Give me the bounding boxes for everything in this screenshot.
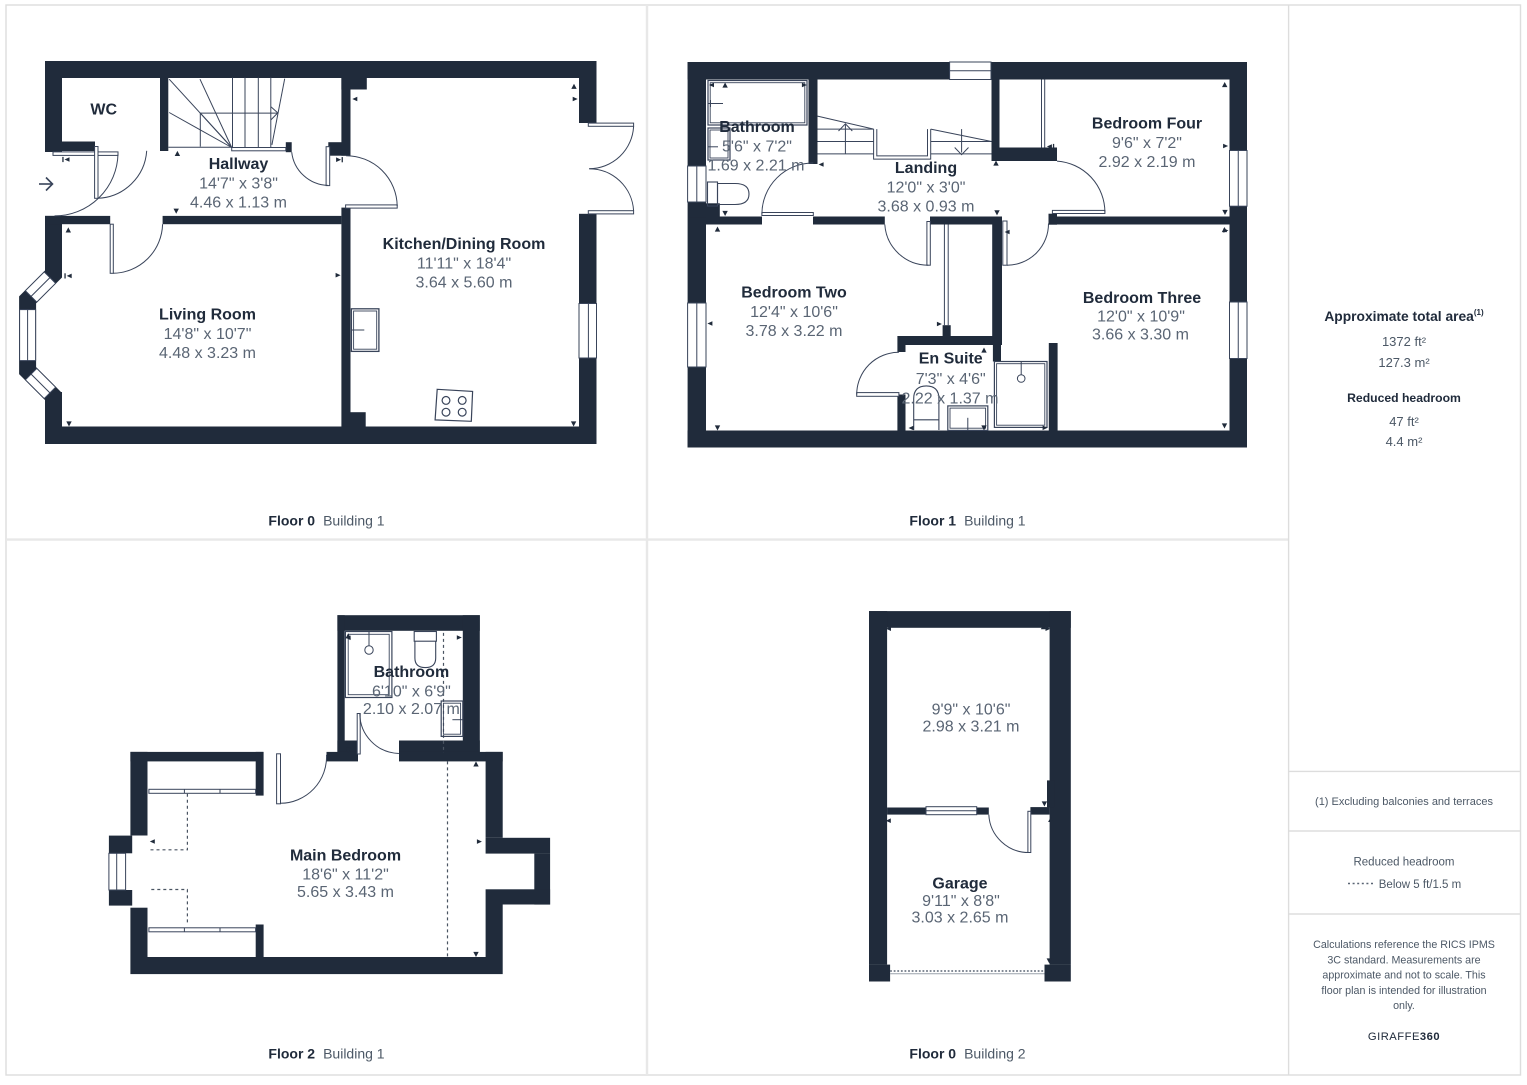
svg-text:9'11" x 8'8": 9'11" x 8'8" <box>922 893 1000 910</box>
svg-text:14'8" x 10'7": 14'8" x 10'7" <box>164 326 252 343</box>
svg-text:Garage: Garage <box>932 876 987 893</box>
svg-text:3C standard. Measurements are: 3C standard. Measurements are <box>1327 954 1480 966</box>
svg-text:127.3 m²: 127.3 m² <box>1378 355 1430 370</box>
svg-text:9'6" x 7'2": 9'6" x 7'2" <box>1112 135 1182 152</box>
svg-text:2.98 x 3.21 m: 2.98 x 3.21 m <box>923 719 1020 736</box>
svg-text:Living Room: Living Room <box>159 307 256 324</box>
svg-text:Bathroom: Bathroom <box>719 119 795 136</box>
svg-text:3.03 x 2.65 m: 3.03 x 2.65 m <box>912 910 1009 927</box>
svg-text:2.10 x 2.07 m: 2.10 x 2.07 m <box>363 701 460 718</box>
svg-text:47 ft²: 47 ft² <box>1389 414 1419 429</box>
svg-text:floor plan is intended for ill: floor plan is intended for illustration <box>1321 985 1486 997</box>
svg-text:En Suite: En Suite <box>919 351 983 368</box>
svg-text:1372 ft²: 1372 ft² <box>1382 334 1427 349</box>
svg-text:12'0" x 10'9": 12'0" x 10'9" <box>1097 309 1185 326</box>
svg-text:1.69 x 2.21 m: 1.69 x 2.21 m <box>708 158 805 175</box>
svg-text:5.65 x 3.43 m: 5.65 x 3.43 m <box>297 884 394 901</box>
svg-text:approximate and not to scale.: approximate and not to scale. This <box>1322 970 1485 982</box>
svg-text:Hallway: Hallway <box>209 156 269 173</box>
svg-text:12'4" x 10'6": 12'4" x 10'6" <box>750 304 838 321</box>
svg-text:WC: WC <box>90 102 117 119</box>
svg-text:Floor 0Building 2: Floor 0Building 2 <box>909 1046 1025 1062</box>
svg-text:Bedroom Four: Bedroom Four <box>1092 116 1202 133</box>
svg-text:4.46 x 1.13 m: 4.46 x 1.13 m <box>190 195 287 212</box>
svg-text:only.: only. <box>1393 1000 1415 1012</box>
svg-text:Reduced headroom: Reduced headroom <box>1347 391 1461 405</box>
svg-text:Main Bedroom: Main Bedroom <box>290 848 401 865</box>
svg-text:Kitchen/Dining Room: Kitchen/Dining Room <box>383 236 546 253</box>
svg-text:Landing: Landing <box>895 160 957 177</box>
svg-text:3.64 x 5.60 m: 3.64 x 5.60 m <box>416 275 513 292</box>
svg-text:3.68 x 0.93 m: 3.68 x 0.93 m <box>878 199 975 216</box>
svg-text:Below 5 ft/1.5 m: Below 5 ft/1.5 m <box>1379 879 1461 891</box>
svg-text:Floor 2Building 1: Floor 2Building 1 <box>268 1046 384 1062</box>
svg-text:Reduced headroom: Reduced headroom <box>1353 857 1454 869</box>
svg-text:12'0" x 3'0": 12'0" x 3'0" <box>887 180 966 197</box>
svg-text:Approximate total area(1): Approximate total area(1) <box>1324 308 1484 324</box>
svg-text:Bathroom: Bathroom <box>374 664 450 681</box>
svg-text:2.22 x 1.37 m: 2.22 x 1.37 m <box>902 390 999 407</box>
svg-text:14'7" x 3'8": 14'7" x 3'8" <box>199 176 278 193</box>
svg-text:4.48 x 3.23 m: 4.48 x 3.23 m <box>159 345 256 362</box>
svg-text:(1) Excluding balconies and te: (1) Excluding balconies and terraces <box>1315 796 1493 808</box>
svg-text:9'9" x 10'6": 9'9" x 10'6" <box>932 702 1011 719</box>
svg-text:7'3" x 4'6": 7'3" x 4'6" <box>916 371 986 388</box>
svg-text:Bedroom Three: Bedroom Three <box>1083 290 1201 307</box>
svg-text:18'6" x 11'2": 18'6" x 11'2" <box>302 867 389 884</box>
svg-text:6'10" x 6'9": 6'10" x 6'9" <box>372 684 451 701</box>
svg-text:Floor 0Building 1: Floor 0Building 1 <box>268 513 384 529</box>
svg-text:3.66 x 3.30 m: 3.66 x 3.30 m <box>1092 327 1189 344</box>
svg-text:3.78 x 3.22 m: 3.78 x 3.22 m <box>746 323 843 340</box>
svg-text:11'11" x 18'4": 11'11" x 18'4" <box>417 256 511 273</box>
svg-text:Calculations reference the RIC: Calculations reference the RICS IPMS <box>1313 939 1495 951</box>
svg-text:Floor 1Building 1: Floor 1Building 1 <box>909 513 1025 529</box>
svg-text:Bedroom Two: Bedroom Two <box>741 285 847 302</box>
svg-text:GIRAFFE360: GIRAFFE360 <box>1368 1031 1440 1043</box>
svg-text:5'6" x 7'2": 5'6" x 7'2" <box>722 139 792 156</box>
svg-text:4.4 m²: 4.4 m² <box>1386 434 1424 449</box>
svg-text:2.92 x 2.19 m: 2.92 x 2.19 m <box>1099 154 1196 171</box>
